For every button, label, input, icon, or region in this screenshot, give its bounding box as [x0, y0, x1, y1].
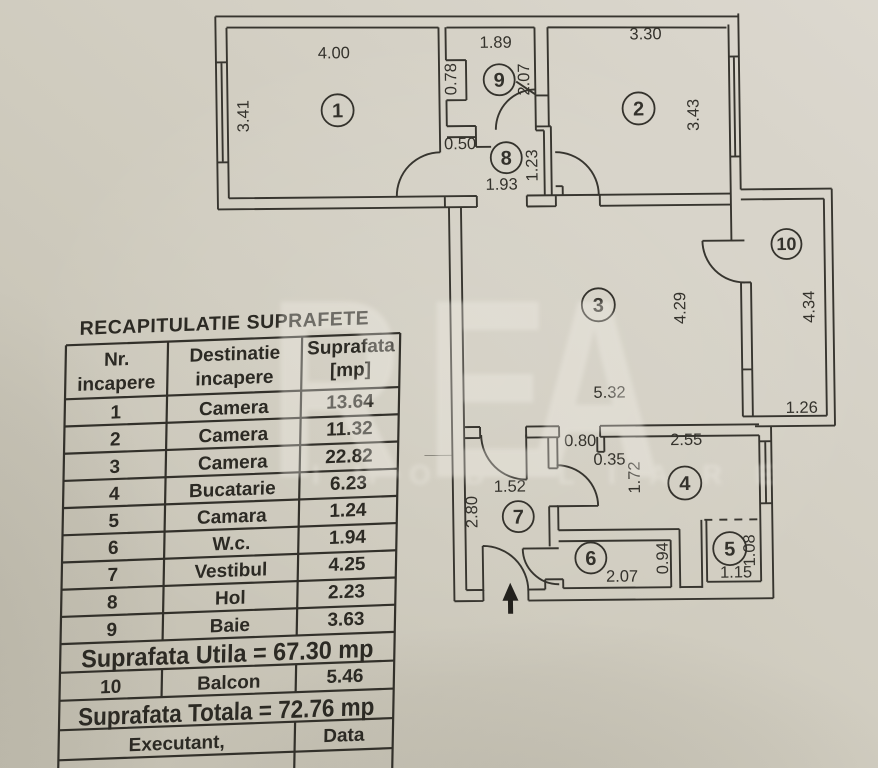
- svg-text:1.93: 1.93: [485, 176, 517, 194]
- svg-text:Data: Data: [323, 725, 365, 748]
- svg-text:6: 6: [108, 538, 119, 559]
- svg-text:8: 8: [107, 592, 118, 613]
- svg-text:1.26: 1.26: [786, 399, 818, 417]
- svg-text:2: 2: [633, 98, 644, 120]
- svg-text:Hol: Hol: [215, 588, 246, 610]
- svg-text:1: 1: [332, 100, 343, 122]
- svg-text:4.29: 4.29: [671, 292, 689, 324]
- svg-text:4.25: 4.25: [328, 554, 366, 576]
- svg-text:0.78: 0.78: [442, 63, 460, 95]
- svg-text:Baie: Baie: [210, 615, 251, 637]
- svg-text:3.30: 3.30: [629, 25, 661, 43]
- svg-text:9: 9: [106, 620, 117, 641]
- svg-text:9: 9: [493, 70, 504, 92]
- svg-text:incapere: incapere: [195, 367, 274, 391]
- svg-text:10: 10: [100, 677, 122, 699]
- svg-text:1.08: 1.08: [741, 534, 759, 566]
- svg-text:3: 3: [109, 457, 120, 478]
- svg-text:5: 5: [724, 539, 735, 561]
- svg-text:Balcon: Balcon: [197, 671, 261, 694]
- svg-text:Camera: Camera: [198, 424, 269, 448]
- svg-text:1.89: 1.89: [479, 34, 511, 52]
- svg-text:3.43: 3.43: [684, 99, 702, 131]
- svg-text:7: 7: [107, 565, 118, 586]
- svg-text:5.46: 5.46: [326, 666, 363, 688]
- svg-text:Camera: Camera: [198, 451, 269, 475]
- svg-text:4: 4: [109, 484, 120, 505]
- svg-text:W.c.: W.c.: [212, 533, 250, 555]
- svg-text:3.41: 3.41: [234, 100, 252, 132]
- svg-text:4.00: 4.00: [318, 44, 350, 62]
- svg-text:2.55: 2.55: [670, 431, 702, 449]
- svg-text:Camera: Camera: [199, 397, 270, 421]
- svg-text:Nr.: Nr.: [104, 349, 130, 371]
- svg-text:0.50: 0.50: [444, 135, 476, 153]
- svg-text:3.63: 3.63: [327, 609, 364, 631]
- svg-text:2.07: 2.07: [515, 63, 533, 95]
- svg-text:2.07: 2.07: [606, 567, 638, 585]
- svg-text:2.23: 2.23: [328, 581, 365, 603]
- svg-text:1: 1: [110, 402, 121, 423]
- svg-text:1.23: 1.23: [523, 149, 541, 181]
- svg-text:Destinatie: Destinatie: [189, 342, 280, 366]
- svg-text:8: 8: [501, 148, 512, 170]
- svg-text:Camara: Camara: [197, 505, 268, 529]
- svg-text:Vestibul: Vestibul: [194, 559, 267, 583]
- svg-text:10: 10: [776, 234, 796, 254]
- svg-text:incapere: incapere: [77, 372, 156, 396]
- svg-text:Executant,: Executant,: [128, 732, 224, 757]
- svg-text:0.94: 0.94: [654, 542, 672, 574]
- svg-text:5: 5: [108, 511, 119, 532]
- svg-text:4.34: 4.34: [800, 291, 818, 323]
- svg-text:6: 6: [585, 548, 596, 570]
- svg-text:Bucatarie: Bucatarie: [189, 478, 276, 502]
- svg-text:IMOBILIARE: IMOBILIARE: [312, 459, 807, 490]
- svg-text:2: 2: [110, 429, 121, 450]
